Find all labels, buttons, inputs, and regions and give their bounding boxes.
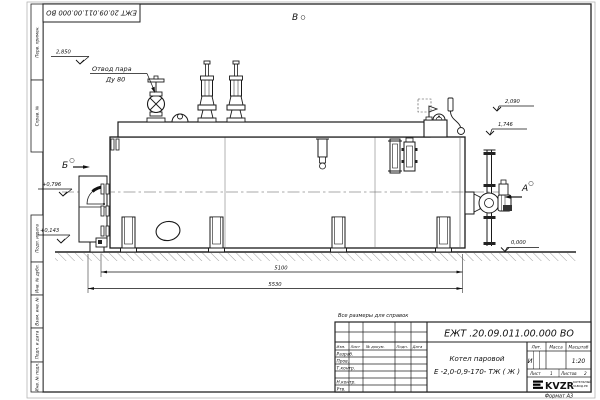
side-label-7: Инв. № подл. — [35, 363, 40, 392]
svg-text:5100: 5100 — [274, 266, 288, 272]
water-level-gauge-2 — [402, 138, 418, 171]
support-leg-1 — [121, 217, 137, 252]
col-list: Лист — [350, 344, 361, 349]
row-prov: Пров. — [337, 359, 350, 365]
support-leg-2 — [209, 217, 225, 252]
ground — [55, 252, 576, 261]
svg-text:В: В — [292, 13, 298, 23]
reference-note: Все размеры для справок — [338, 313, 409, 319]
sheet-label: Лист — [529, 371, 541, 376]
side-label-2: Справ. № — [35, 105, 40, 126]
product-name-line2: Е -2,0-0,9-170- ТЖ ( Ж ) — [434, 368, 520, 376]
side-label-1: Перв. примен. — [35, 26, 40, 57]
svg-text:Отвод пара: Отвод пара — [92, 65, 132, 73]
svg-text:1,746: 1,746 — [498, 122, 514, 128]
row-nkontr: Н.контр. — [337, 380, 356, 386]
logo-text: KVZR — [545, 381, 575, 392]
svg-text:Б: Б — [62, 161, 68, 171]
svg-text:Ду 80: Ду 80 — [105, 76, 125, 84]
support-leg-3 — [331, 217, 347, 252]
support-leg-4 — [436, 217, 452, 252]
water-level-gauge-1 — [388, 139, 402, 173]
sheets-label: Листов — [560, 371, 577, 376]
drawing-sheet: Перв. примен. Справ. № Подп. и дата Инв.… — [0, 0, 600, 400]
side-label-5: Взам. инв. № — [35, 297, 40, 326]
top-stamp-text: ЕЖТ 20.09.011.00.000 ВО — [46, 9, 137, 17]
top-stamp: ЕЖТ 20.09.011.00.000 ВО — [43, 4, 140, 22]
sheet-value: 1 — [550, 371, 553, 376]
engineering-drawing: Перв. примен. Справ. № Подп. и дата Инв.… — [0, 0, 600, 400]
row-tkontr: Т.контр. — [337, 366, 356, 372]
lit-value: И — [528, 357, 533, 365]
lit-label: Лит. — [531, 345, 542, 350]
col-doc: № докум. — [365, 344, 385, 349]
svg-text:2,850: 2,850 — [56, 50, 72, 56]
side-label-3: Подп. и дата — [35, 224, 40, 253]
side-label-4: Инв. № дубл. — [35, 264, 40, 293]
side-label-6: Подп. и дата — [35, 330, 40, 359]
steam-drum-top — [118, 122, 430, 137]
logo-sub2: ЗАВОД.РФ — [573, 384, 589, 388]
scale-label: Масштаб — [569, 345, 589, 350]
svg-text:+0,143: +0,143 — [40, 228, 59, 234]
svg-text:0,000: 0,000 — [511, 240, 527, 246]
sheets-value: 2 — [584, 371, 587, 376]
col-podp: Подп. — [397, 344, 409, 349]
product-name-line1: Котел паровой — [450, 355, 505, 363]
svg-text:А: А — [521, 184, 528, 194]
row-razrab: Разраб. — [337, 352, 354, 358]
svg-text:+0,796: +0,796 — [42, 182, 62, 188]
doc-number: ЕЖТ .20.09.011.00.000 ВО — [444, 329, 574, 340]
svg-text:5530: 5530 — [268, 282, 282, 288]
col-izm: Изм. — [337, 344, 346, 349]
drum-end-box — [424, 120, 447, 137]
mass-label: Масса — [549, 345, 563, 350]
scale-value: 1:20 — [572, 358, 586, 365]
row-utv: Утв. — [337, 387, 346, 393]
svg-text:2,090: 2,090 — [505, 99, 521, 105]
col-data: Дата — [412, 344, 424, 349]
format-label: Формат А3 — [545, 394, 573, 400]
